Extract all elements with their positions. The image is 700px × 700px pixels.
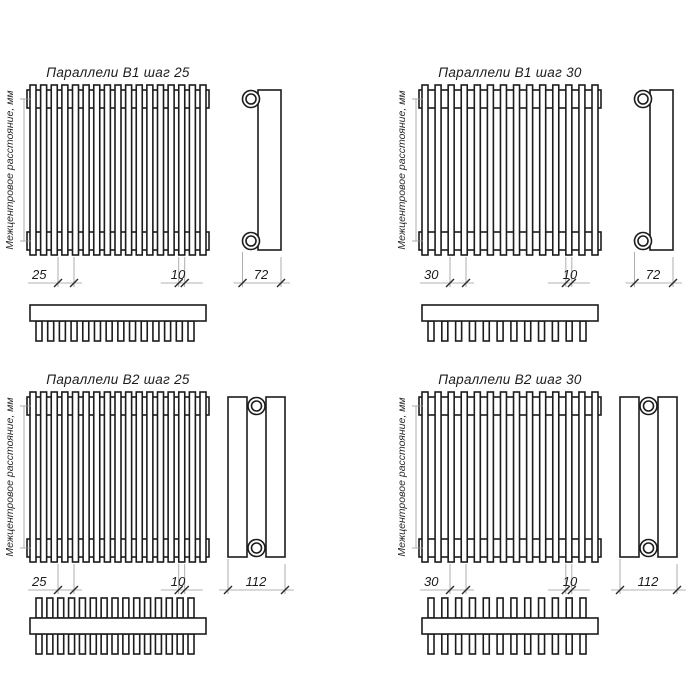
- plan-tooth: [90, 634, 96, 654]
- plan-tooth: [483, 634, 489, 654]
- plan-tooth: [47, 634, 53, 654]
- diagram-title: Параллели В2 шаг 30: [438, 372, 582, 387]
- diagram-b1-step25: Параллели В1 шаг 25 Межцентровое расстоя…: [0, 55, 385, 357]
- tube: [51, 392, 57, 562]
- plan-tooth: [176, 321, 182, 341]
- plan-tooth: [36, 634, 42, 654]
- dim-step-label: 30: [424, 574, 439, 589]
- plan-tooth: [428, 321, 434, 341]
- tube: [553, 85, 559, 255]
- plan-tooth: [79, 634, 85, 654]
- technical-drawing-sheet: Параллели В1 шаг 25 Межцентровое расстоя…: [0, 0, 700, 700]
- tube: [115, 85, 121, 255]
- plan-tooth: [48, 321, 54, 341]
- tube: [461, 85, 467, 255]
- plan-tooth: [79, 598, 85, 618]
- plan-tooth: [134, 634, 140, 654]
- tube: [30, 392, 36, 562]
- dim-step-label: 25: [31, 267, 47, 282]
- plan-header-bar: [422, 305, 598, 321]
- tube: [422, 85, 428, 255]
- tube: [566, 85, 572, 255]
- plan-tooth: [525, 598, 531, 618]
- plan-tooth: [566, 321, 572, 341]
- dim-tube-width-label: 10: [171, 267, 186, 282]
- side-connection-inner: [638, 94, 648, 104]
- tube: [527, 85, 533, 255]
- plan-header-bar: [30, 618, 206, 634]
- plan-tooth: [123, 634, 129, 654]
- tube: [487, 85, 493, 255]
- tube: [73, 392, 79, 562]
- tube: [553, 392, 559, 562]
- plan-tooth: [580, 634, 586, 654]
- plan-tooth: [58, 598, 64, 618]
- plan-tooth: [47, 598, 53, 618]
- side-connection-inner: [644, 401, 654, 411]
- tube: [422, 392, 428, 562]
- tube: [41, 85, 47, 255]
- tube: [435, 85, 441, 255]
- plan-tooth: [188, 598, 194, 618]
- tube: [189, 392, 195, 562]
- tube: [83, 85, 89, 255]
- side-front-column: [620, 397, 639, 557]
- plan-tooth: [580, 598, 586, 618]
- plan-tooth: [145, 634, 151, 654]
- plan-tooth: [177, 598, 183, 618]
- plan-tooth: [442, 634, 448, 654]
- plan-tooth: [511, 634, 517, 654]
- tube: [126, 85, 132, 255]
- plan-tooth: [90, 598, 96, 618]
- tube: [147, 392, 153, 562]
- dim-step-label: 30: [424, 267, 439, 282]
- plan-tooth: [456, 321, 462, 341]
- plan-tooth: [428, 634, 434, 654]
- front-top-header: [419, 90, 601, 108]
- plan-tooth: [566, 634, 572, 654]
- tube: [514, 85, 520, 255]
- dim-tube-width-label: 10: [563, 574, 578, 589]
- tube: [62, 392, 68, 562]
- plan-tooth: [511, 598, 517, 618]
- plan-tooth: [112, 634, 118, 654]
- plan-tooth: [442, 598, 448, 618]
- tube: [579, 85, 585, 255]
- plan-tooth: [94, 321, 100, 341]
- plan-tooth: [153, 321, 159, 341]
- plan-tooth: [497, 321, 503, 341]
- plan-tooth: [525, 634, 531, 654]
- plan-tooth: [123, 598, 129, 618]
- plan-tooth: [71, 321, 77, 341]
- tube: [41, 392, 47, 562]
- radiator-drawing: [412, 85, 682, 341]
- tube: [136, 392, 142, 562]
- dim-depth-label: 112: [638, 574, 659, 589]
- side-connection-inner: [246, 94, 256, 104]
- tube: [94, 392, 100, 562]
- tube: [540, 85, 546, 255]
- plan-tooth: [469, 634, 475, 654]
- plan-tooth: [145, 598, 151, 618]
- tube: [592, 85, 598, 255]
- plan-header-bar: [30, 305, 206, 321]
- plan-tooth: [428, 598, 434, 618]
- tube: [126, 392, 132, 562]
- plan-tooth: [106, 321, 112, 341]
- tube: [435, 392, 441, 562]
- diagram-b2-step30: Параллели В2 шаг 30 Межцентровое расстоя…: [392, 362, 700, 664]
- plan-tooth: [165, 321, 171, 341]
- tube: [115, 392, 121, 562]
- tube: [487, 392, 493, 562]
- plan-tooth: [101, 634, 107, 654]
- plan-tooth: [497, 598, 503, 618]
- tube: [200, 85, 206, 255]
- side-body: [650, 90, 673, 250]
- plan-tooth: [456, 598, 462, 618]
- diagram-title: Параллели В1 шаг 25: [46, 65, 190, 80]
- plan-tooth: [469, 598, 475, 618]
- plan-header-bar: [422, 618, 598, 634]
- plan-tooth: [483, 321, 489, 341]
- plan-tooth: [69, 598, 75, 618]
- plan-tooth: [188, 634, 194, 654]
- side-connection-inner: [252, 401, 262, 411]
- diagram-title: Параллели В1 шаг 30: [438, 65, 582, 80]
- side-front-column: [228, 397, 247, 557]
- plan-tooth: [112, 598, 118, 618]
- plan-tooth: [36, 598, 42, 618]
- diagram-b2-step25: Параллели В2 шаг 25 Межцентровое расстоя…: [0, 362, 385, 664]
- dim-depth-label: 72: [254, 267, 269, 282]
- plan-tooth: [188, 321, 194, 341]
- tube: [179, 392, 185, 562]
- tube: [179, 85, 185, 255]
- plan-tooth: [155, 634, 161, 654]
- plan-tooth: [69, 634, 75, 654]
- tube: [83, 392, 89, 562]
- tube: [62, 85, 68, 255]
- dim-tube-width-label: 10: [171, 574, 186, 589]
- plan-tooth: [552, 321, 558, 341]
- plan-tooth: [134, 598, 140, 618]
- diagram-b1-step30: Параллели В1 шаг 30 Межцентровое расстоя…: [392, 55, 700, 357]
- plan-tooth: [539, 321, 545, 341]
- plan-tooth: [59, 321, 65, 341]
- tube: [514, 392, 520, 562]
- tube: [461, 392, 467, 562]
- side-connection-inner: [252, 543, 262, 553]
- plan-tooth: [552, 634, 558, 654]
- front-bottom-header: [419, 232, 601, 250]
- tube: [200, 392, 206, 562]
- tube: [566, 392, 572, 562]
- tube: [474, 392, 480, 562]
- plan-tooth: [483, 598, 489, 618]
- axis-label: Межцентровое расстояние, мм: [396, 90, 408, 249]
- tube: [136, 85, 142, 255]
- tube: [448, 85, 454, 255]
- plan-tooth: [36, 321, 42, 341]
- plan-tooth: [511, 321, 517, 341]
- tube: [540, 392, 546, 562]
- plan-tooth: [552, 598, 558, 618]
- side-rear-column: [266, 397, 285, 557]
- plan-tooth: [497, 634, 503, 654]
- plan-tooth: [566, 598, 572, 618]
- plan-tooth: [469, 321, 475, 341]
- dim-step-label: 25: [31, 574, 47, 589]
- plan-tooth: [166, 634, 172, 654]
- tube: [158, 85, 164, 255]
- tube: [448, 392, 454, 562]
- plan-tooth: [177, 634, 183, 654]
- diagram-title: Параллели В2 шаг 25: [46, 372, 190, 387]
- plan-tooth: [456, 634, 462, 654]
- axis-label: Межцентровое расстояние, мм: [4, 397, 16, 556]
- tube: [104, 392, 110, 562]
- side-connection-inner: [638, 236, 648, 246]
- plan-tooth: [166, 598, 172, 618]
- tube: [94, 85, 100, 255]
- tube: [73, 85, 79, 255]
- tube: [51, 85, 57, 255]
- front-bottom-header: [419, 539, 601, 557]
- plan-tooth: [155, 598, 161, 618]
- radiator-drawing: [20, 392, 294, 654]
- tube: [104, 85, 110, 255]
- plan-tooth: [101, 598, 107, 618]
- dim-depth-label: 72: [646, 267, 661, 282]
- tube: [527, 392, 533, 562]
- plan-tooth: [118, 321, 124, 341]
- axis-label: Межцентровое расстояние, мм: [396, 397, 408, 556]
- dim-tube-width-label: 10: [563, 267, 578, 282]
- plan-tooth: [130, 321, 136, 341]
- tube: [474, 85, 480, 255]
- plan-tooth: [83, 321, 89, 341]
- plan-tooth: [539, 598, 545, 618]
- radiator-drawing: [20, 85, 290, 341]
- tube: [168, 85, 174, 255]
- side-connection-inner: [644, 543, 654, 553]
- plan-tooth: [58, 634, 64, 654]
- plan-tooth: [580, 321, 586, 341]
- tube: [168, 392, 174, 562]
- tube: [30, 85, 36, 255]
- axis-label: Межцентровое расстояние, мм: [4, 90, 16, 249]
- tube: [592, 392, 598, 562]
- plan-tooth: [442, 321, 448, 341]
- plan-tooth: [525, 321, 531, 341]
- tube: [500, 392, 506, 562]
- tube: [579, 392, 585, 562]
- plan-tooth: [539, 634, 545, 654]
- side-connection-inner: [246, 236, 256, 246]
- tube: [158, 392, 164, 562]
- side-rear-column: [658, 397, 677, 557]
- plan-tooth: [141, 321, 147, 341]
- tube: [500, 85, 506, 255]
- front-top-header: [419, 397, 601, 415]
- tube: [147, 85, 153, 255]
- dim-depth-label: 112: [246, 574, 267, 589]
- radiator-drawing: [412, 392, 686, 654]
- tube: [189, 85, 195, 255]
- side-body: [258, 90, 281, 250]
